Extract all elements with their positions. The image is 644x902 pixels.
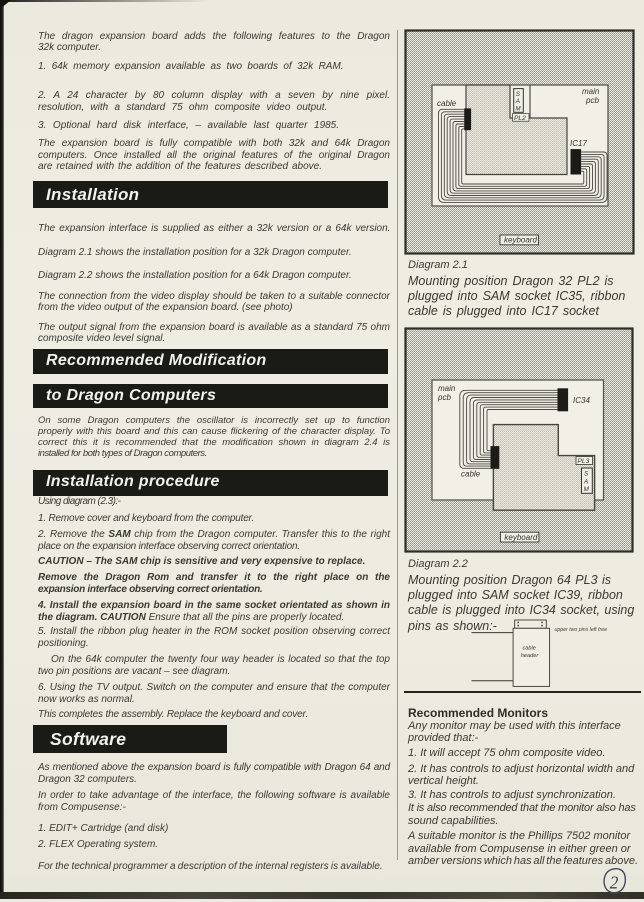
svg-text:A: A <box>583 478 588 485</box>
svg-text:IC17: IC17 <box>570 139 587 148</box>
svg-text:IC34: IC34 <box>573 396 590 405</box>
svg-text:M: M <box>515 106 521 113</box>
svg-text:pcb: pcb <box>585 96 599 105</box>
svg-text:pcb: pcb <box>437 393 451 402</box>
svg-text:header: header <box>521 653 540 659</box>
svg-text:keyboard: keyboard <box>504 533 537 542</box>
svg-text:upper two pins left free: upper two pins left free <box>555 627 608 633</box>
svg-text:2: 2 <box>610 872 619 892</box>
svg-text:main: main <box>438 384 456 393</box>
svg-text:PL3: PL3 <box>578 458 590 465</box>
svg-text:main: main <box>582 87 600 96</box>
svg-text:PL2: PL2 <box>514 115 526 122</box>
svg-text:A: A <box>515 98 520 105</box>
svg-text:cable: cable <box>461 470 481 479</box>
svg-text:cable: cable <box>437 99 457 108</box>
svg-text:M: M <box>584 486 590 493</box>
svg-text:cable: cable <box>523 646 536 652</box>
svg-text:keyboard: keyboard <box>504 236 537 245</box>
